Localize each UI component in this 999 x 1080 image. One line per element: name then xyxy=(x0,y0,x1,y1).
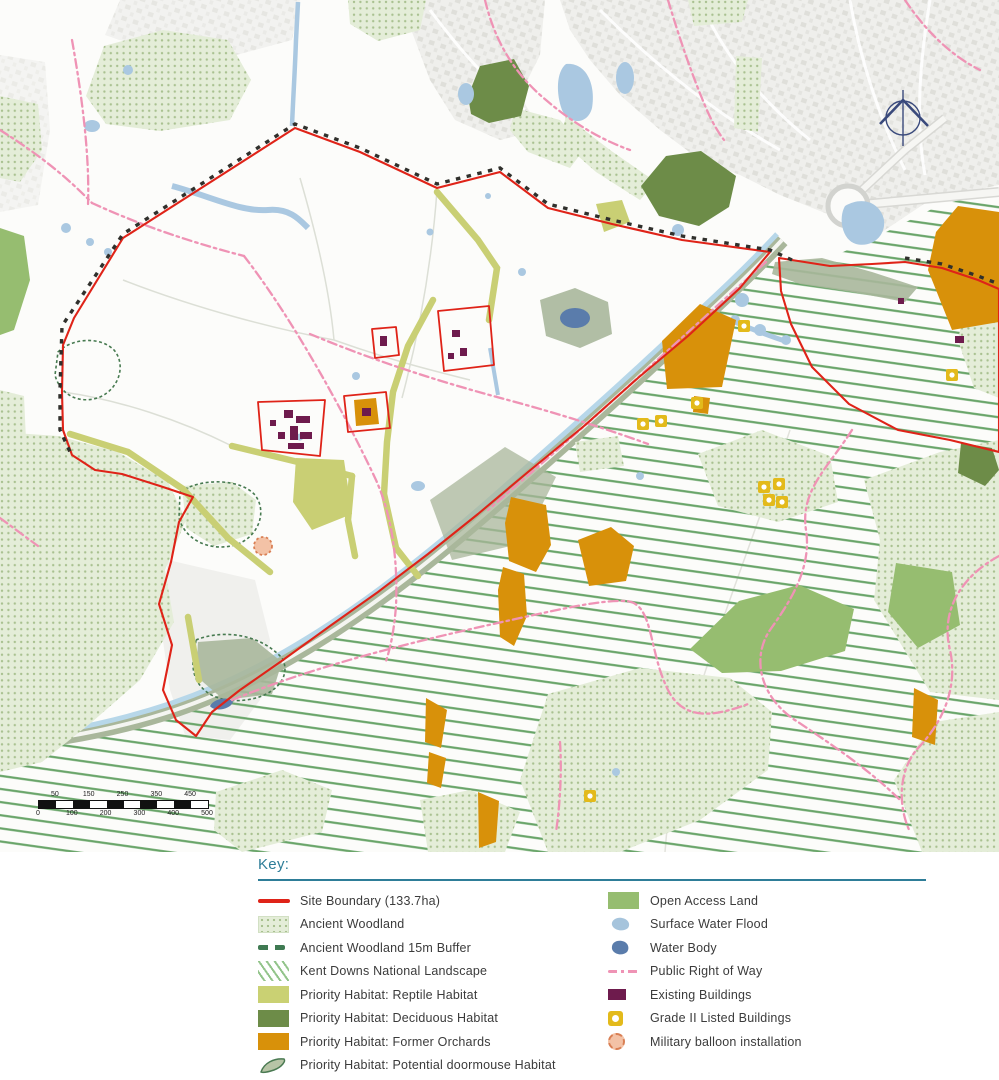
legend-item-surface-water: Surface Water Flood xyxy=(608,913,926,937)
page: 501502503504500100200300400500 Key: Site… xyxy=(0,0,999,1080)
legend-item-open-access: Open Access Land xyxy=(608,889,926,913)
site-boundary-swatch xyxy=(258,899,290,903)
former-orchards-swatch xyxy=(258,1033,289,1050)
reptile-habitat-swatch xyxy=(258,986,289,1003)
legend-label: Surface Water Flood xyxy=(650,917,768,931)
legend-label: Ancient Woodland xyxy=(300,917,404,931)
woodland-buffer-swatch xyxy=(258,945,285,950)
legend-label: Grade II Listed Buildings xyxy=(650,1011,791,1025)
key-divider xyxy=(258,879,926,881)
surface-water-swatch xyxy=(608,915,634,934)
public-right-of-way-swatch xyxy=(608,970,638,974)
ancient-woodland-swatch xyxy=(258,916,289,933)
scale-label: 350 xyxy=(150,791,162,798)
scale-label: 500 xyxy=(201,810,213,817)
legend-label: Priority Habitat: Former Orchards xyxy=(300,1035,491,1049)
key-column-right: Open Access Land Surface Water Flood xyxy=(608,889,926,1077)
legend-label: Existing Buildings xyxy=(650,988,752,1002)
legend-item-reptile-habitat: Priority Habitat: Reptile Habitat xyxy=(258,983,608,1007)
legend-label: Site Boundary (133.7ha) xyxy=(300,894,440,908)
legend-item-deciduous-habitat: Priority Habitat: Deciduous Habitat xyxy=(258,1007,608,1031)
legend-item-water-body: Water Body xyxy=(608,936,926,960)
legend-item-ancient-woodland: Ancient Woodland xyxy=(258,913,608,937)
legend-label: Open Access Land xyxy=(650,894,758,908)
scale-label: 150 xyxy=(83,791,95,798)
scale-label: 400 xyxy=(167,810,179,817)
existing-buildings-swatch xyxy=(608,989,626,1000)
scale-label: 300 xyxy=(134,810,146,817)
legend-item-public-right-of-way: Public Right of Way xyxy=(608,960,926,984)
scale-label: 200 xyxy=(100,810,112,817)
scale-label: 0 xyxy=(36,810,40,817)
legend-item-grade-ii-listed: Grade II Listed Buildings xyxy=(608,1007,926,1031)
scale-label: 450 xyxy=(184,791,196,798)
legend-label: Ancient Woodland 15m Buffer xyxy=(300,941,471,955)
legend-item-existing-buildings: Existing Buildings xyxy=(608,983,926,1007)
constraints-map: 501502503504500100200300400500 xyxy=(0,0,999,852)
military-balloon-swatch xyxy=(608,1033,625,1050)
scale-bar: 501502503504500100200300400500 xyxy=(10,789,225,825)
key-title: Key: xyxy=(258,856,938,873)
scale-label: 250 xyxy=(117,791,129,798)
scale-label: 100 xyxy=(66,810,78,817)
military-balloon-installation xyxy=(254,537,272,555)
legend-label: Military balloon installation xyxy=(650,1035,802,1049)
legend-label: Priority Habitat: Potential doormouse Ha… xyxy=(300,1058,556,1072)
scale-bar-segments xyxy=(38,800,209,809)
deciduous-habitat-swatch xyxy=(258,1010,289,1027)
legend-item-woodland-buffer: Ancient Woodland 15m Buffer xyxy=(258,936,608,960)
legend-item-military-balloon: Military balloon installation xyxy=(608,1030,926,1054)
kent-downs-swatch xyxy=(258,961,289,981)
legend-label: Water Body xyxy=(650,941,717,955)
map-canvas xyxy=(0,0,999,852)
open-access-swatch xyxy=(608,892,639,909)
legend-item-site-boundary: Site Boundary (133.7ha) xyxy=(258,889,608,913)
grade-ii-listed-swatch xyxy=(608,1011,623,1026)
legend-item-dormouse-habitat: Priority Habitat: Potential doormouse Ha… xyxy=(258,1054,608,1078)
dormouse-habitat-swatch xyxy=(258,1055,288,1075)
scale-label: 50 xyxy=(51,791,59,798)
map-key: Key: Site Boundary (133.7ha) Ancient Woo… xyxy=(258,856,938,1077)
legend-label: Priority Habitat: Deciduous Habitat xyxy=(300,1011,498,1025)
key-column-left: Site Boundary (133.7ha) Ancient Woodland… xyxy=(258,889,608,1077)
legend-label: Kent Downs National Landscape xyxy=(300,964,487,978)
legend-item-kent-downs: Kent Downs National Landscape xyxy=(258,960,608,984)
legend-label: Priority Habitat: Reptile Habitat xyxy=(300,988,478,1002)
legend-item-former-orchards: Priority Habitat: Former Orchards xyxy=(258,1030,608,1054)
water-body-swatch xyxy=(608,938,634,957)
legend-label: Public Right of Way xyxy=(650,964,762,978)
